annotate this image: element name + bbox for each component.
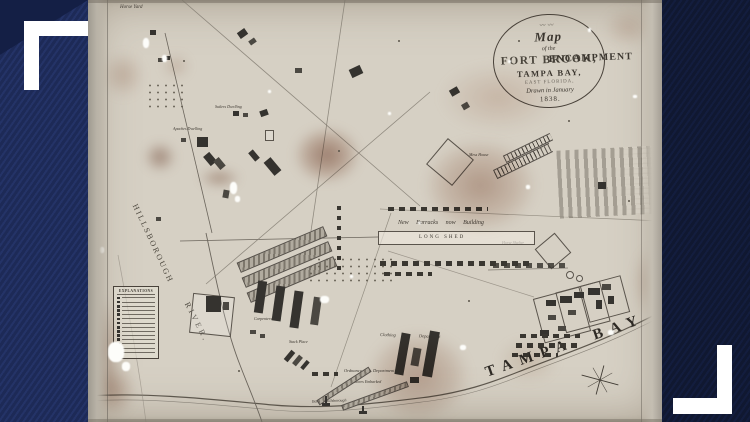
frame-bar-left bbox=[0, 0, 88, 422]
paper-damage-speck bbox=[633, 95, 637, 98]
map-building bbox=[295, 68, 302, 73]
well-circle bbox=[576, 275, 583, 282]
compass-icon bbox=[578, 361, 622, 400]
map-building bbox=[558, 326, 566, 331]
map-building bbox=[602, 284, 611, 290]
hut-row bbox=[516, 343, 582, 348]
map-building bbox=[574, 292, 584, 298]
map-building bbox=[546, 300, 556, 306]
hut-row bbox=[520, 334, 580, 338]
map-building bbox=[596, 300, 602, 309]
paper-damage-speck bbox=[320, 296, 329, 303]
fleck bbox=[518, 40, 520, 42]
label-apaches-dwelling: Apaches Dwelling bbox=[173, 127, 202, 131]
fleck bbox=[398, 40, 400, 42]
paper-damage-speck bbox=[508, 60, 511, 63]
wharf-pier bbox=[322, 403, 330, 406]
paper-damage-speck bbox=[122, 362, 130, 371]
map-building bbox=[250, 330, 256, 334]
tent-dots bbox=[307, 256, 392, 286]
map-building bbox=[548, 315, 556, 320]
paper-damage-speck bbox=[268, 90, 271, 93]
paper-damage-speck bbox=[350, 275, 353, 278]
paper-damage-speck bbox=[460, 345, 466, 350]
label-long-shed: LONG SHED bbox=[419, 235, 465, 240]
paper-damage-speck bbox=[526, 185, 530, 189]
map-building bbox=[223, 302, 229, 310]
map-building bbox=[598, 182, 606, 189]
paper-damage-speck bbox=[143, 38, 149, 48]
fleck bbox=[468, 300, 470, 302]
paper-damage-speck bbox=[608, 330, 614, 335]
label-mess-house: Mess House bbox=[469, 153, 488, 157]
paper-damage-speck bbox=[235, 196, 240, 202]
hut-row bbox=[312, 372, 338, 376]
map-building bbox=[608, 296, 614, 304]
frame-bar-right bbox=[662, 0, 750, 422]
map-edge-right bbox=[640, 0, 662, 422]
corner-bracket-icon bbox=[673, 345, 732, 414]
fleck bbox=[568, 120, 570, 122]
map-fold-line bbox=[641, 0, 642, 422]
fleck bbox=[628, 200, 630, 202]
wharf-pier bbox=[359, 411, 367, 414]
label-sutlers-dwelling: Sutlers Dwelling bbox=[215, 105, 242, 109]
label-horse-yard: Horse Yard bbox=[120, 5, 143, 10]
map-building bbox=[206, 296, 221, 312]
map-building bbox=[588, 288, 600, 295]
label-stores-embarked: Stores Embarked bbox=[354, 380, 381, 384]
paper-damage-speck bbox=[388, 112, 391, 115]
well-circle bbox=[566, 271, 574, 279]
map-building bbox=[233, 111, 239, 116]
tree-dots bbox=[146, 82, 186, 112]
long-shed-building: LONG SHED bbox=[378, 231, 535, 245]
label-new-barracks: New Barracks now Building bbox=[398, 220, 484, 226]
map-building bbox=[560, 296, 572, 303]
map-building bbox=[150, 30, 156, 35]
map-building bbox=[568, 310, 576, 315]
map-building bbox=[197, 137, 208, 147]
map-edge-top bbox=[88, 0, 662, 3]
corner-bracket-icon bbox=[24, 21, 89, 90]
map-building bbox=[265, 130, 274, 141]
map-fold-line bbox=[107, 0, 108, 422]
label-stack-place: Stack Place bbox=[289, 340, 308, 344]
paper-damage-speck bbox=[108, 342, 124, 362]
map-building bbox=[181, 138, 186, 142]
fleck bbox=[183, 60, 185, 62]
paper-damage-speck bbox=[230, 182, 237, 194]
hut-row bbox=[512, 353, 558, 357]
map-building bbox=[156, 217, 161, 221]
legend-title: EXPLANATIONS bbox=[117, 289, 155, 295]
paper-damage-speck bbox=[162, 55, 167, 62]
map-building bbox=[243, 113, 248, 117]
hut-row bbox=[388, 207, 488, 211]
image-viewer: 〰〰 Map of the ENCAMPMENT near FORT BROOK… bbox=[0, 0, 750, 422]
paper-damage-speck bbox=[588, 28, 591, 32]
map-building bbox=[410, 377, 419, 383]
fleck bbox=[338, 150, 340, 152]
hut-row bbox=[493, 263, 565, 268]
fleck bbox=[238, 370, 240, 372]
map-building bbox=[260, 334, 265, 338]
paper-damage-speck bbox=[418, 222, 421, 224]
fort-brook-map: 〰〰 Map of the ENCAMPMENT near FORT BROOK… bbox=[88, 0, 662, 422]
